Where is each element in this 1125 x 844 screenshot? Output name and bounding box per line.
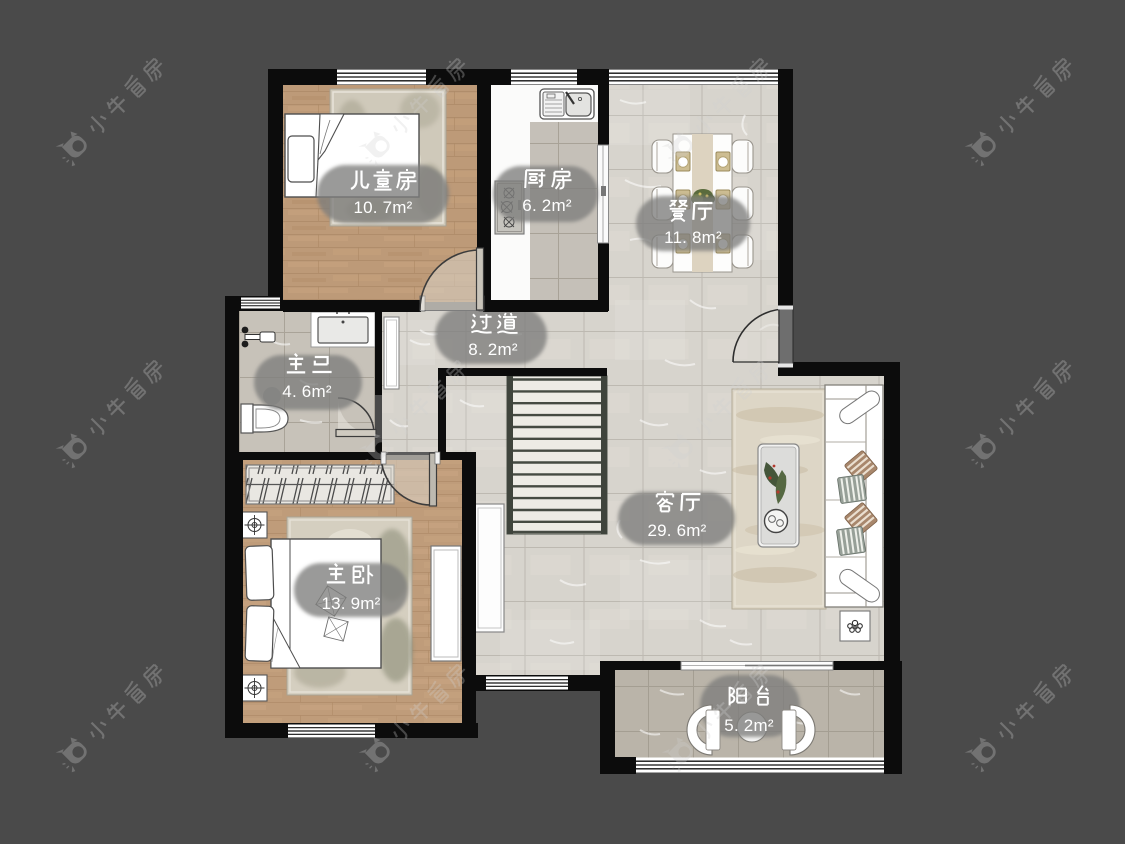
svg-text:13. 9m²: 13. 9m² — [321, 594, 380, 613]
svg-text:6. 2m²: 6. 2m² — [522, 196, 572, 215]
svg-text:29. 6m²: 29. 6m² — [647, 521, 706, 540]
svg-text:10. 7m²: 10. 7m² — [353, 198, 412, 217]
svg-text:5. 2m²: 5. 2m² — [724, 716, 774, 735]
svg-text:11. 8m²: 11. 8m² — [664, 228, 722, 247]
svg-text:8. 2m²: 8. 2m² — [468, 340, 518, 359]
svg-text:4. 6m²: 4. 6m² — [282, 382, 332, 401]
